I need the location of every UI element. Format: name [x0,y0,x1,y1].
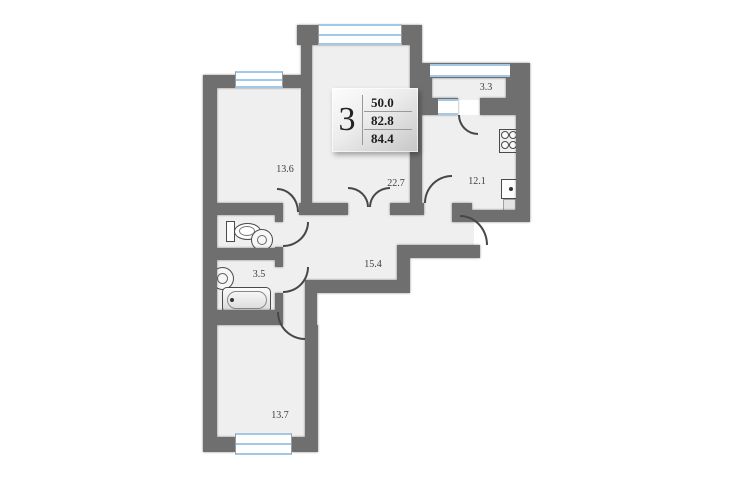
badge-room-count: 3 [332,88,362,152]
wall [305,325,318,450]
badge-divider [362,95,363,145]
walls-layer [0,0,731,478]
area-label-bedroom-left: 13.6 [270,164,300,176]
wall [301,25,312,215]
area-label-kitchen: 12.1 [462,176,492,188]
area-label-hallway: 15.4 [356,259,390,271]
window-kitchen-balcony [438,99,458,115]
wall [217,248,283,260]
floor-plan: 13.6 22.7 3.3 12.1 3.5 15.4 13.7 3 50.0 … [0,0,731,478]
badge-total-area: 84.4 [364,129,412,147]
wall [292,437,318,452]
wall [422,98,438,115]
window-bedroom-bottom [235,433,292,455]
wall [217,310,283,325]
wall [305,280,410,293]
area-label-bathroom: 3.5 [247,269,271,281]
badge-values: 50.0 82.8 84.4 [364,93,412,147]
wall [480,98,517,115]
badge-living-area: 50.0 [364,94,412,111]
wall [305,280,317,325]
wall [390,203,424,215]
badge-area: 82.8 [364,111,412,129]
window-living-room [318,24,402,45]
wall [299,203,348,215]
window-bedroom-left [235,71,283,88]
area-label-bedroom-bottom: 13.7 [263,410,297,422]
wall [217,203,277,215]
area-label-balcony: 3.3 [474,82,498,94]
window-balcony [430,64,510,77]
info-badge: 3 50.0 82.8 84.4 [332,88,418,152]
wall [422,76,432,100]
wall [203,437,235,452]
area-label-living-room: 22.7 [380,178,412,190]
wall [203,75,217,452]
